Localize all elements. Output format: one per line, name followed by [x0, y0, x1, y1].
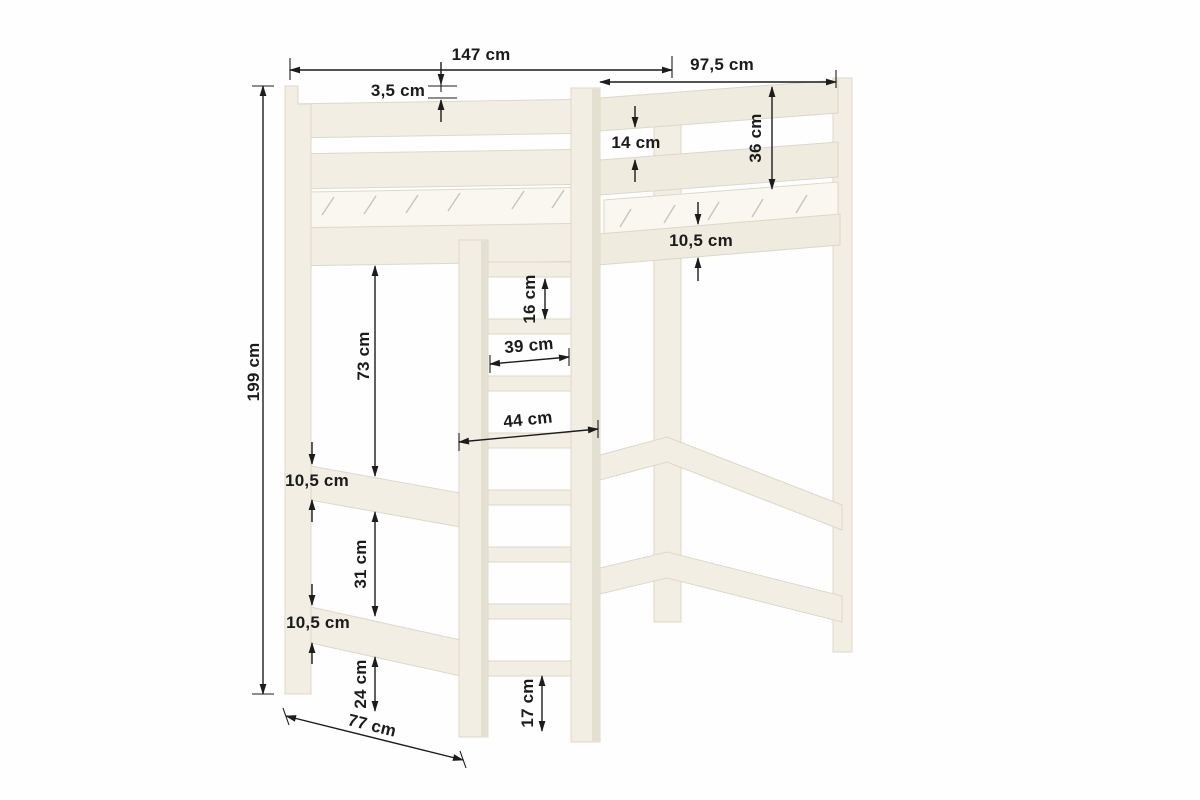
dim-label-total-height: 199 cm: [244, 343, 264, 402]
dim-label-total-width: 147 cm: [452, 45, 511, 65]
bed-front-face: [286, 99, 600, 266]
dim-label-bed-frame-thickness: 10,5 cm: [669, 231, 733, 251]
dim-label-top-rail-thickness: 3,5 cm: [371, 81, 425, 101]
dim-label-ladder-floor-gap: 17 cm: [518, 678, 538, 727]
dim-label-ladder-inner-width: 39 cm: [504, 334, 555, 358]
ladder-stile-left: [459, 240, 488, 737]
dim-label-under-bed-clearance: 73 cm: [354, 331, 374, 380]
ladder-rungs: [486, 262, 573, 676]
dim-label-guard-rail-height: 36 cm: [746, 113, 766, 162]
bed-lower-frame-right: [600, 437, 842, 622]
ladder-stile-right: [571, 88, 600, 742]
loft-bed-drawing: [0, 0, 1200, 800]
dim-label-floor-clearance: 24 cm: [351, 659, 371, 708]
dim-label-side-rail-upper: 10,5 cm: [285, 471, 349, 491]
dim-label-rail-gap: 14 cm: [611, 133, 660, 153]
bed-leg-front-left: [285, 86, 311, 694]
dim-label-side-rail-lower: 10,5 cm: [286, 613, 350, 633]
dim-label-side-rail-gap: 31 cm: [351, 539, 371, 588]
dim-label-ladder-rung-spacing: 16 cm: [520, 274, 540, 323]
dim-label-upper-depth: 97,5 cm: [690, 55, 754, 75]
bed-side-rails-left: [288, 462, 488, 682]
diagram-canvas: 147 cm 3,5 cm 97,5 cm 14 cm 36 cm 10,5 c…: [0, 0, 1200, 800]
